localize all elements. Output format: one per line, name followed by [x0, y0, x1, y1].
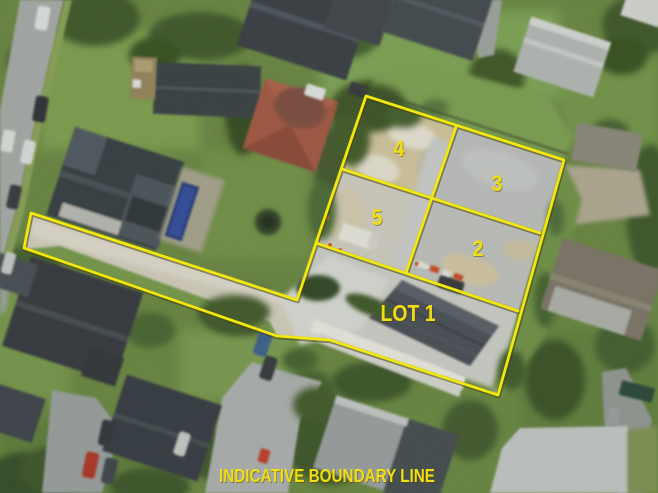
svg-text:3: 3: [492, 171, 503, 196]
svg-text:INDICATIVE BOUNDARY LINE: INDICATIVE BOUNDARY LINE: [219, 466, 435, 486]
svg-text:LOT 1: LOT 1: [381, 300, 436, 326]
svg-text:2: 2: [473, 236, 484, 261]
svg-text:4: 4: [394, 136, 406, 161]
svg-text:5: 5: [372, 205, 383, 230]
